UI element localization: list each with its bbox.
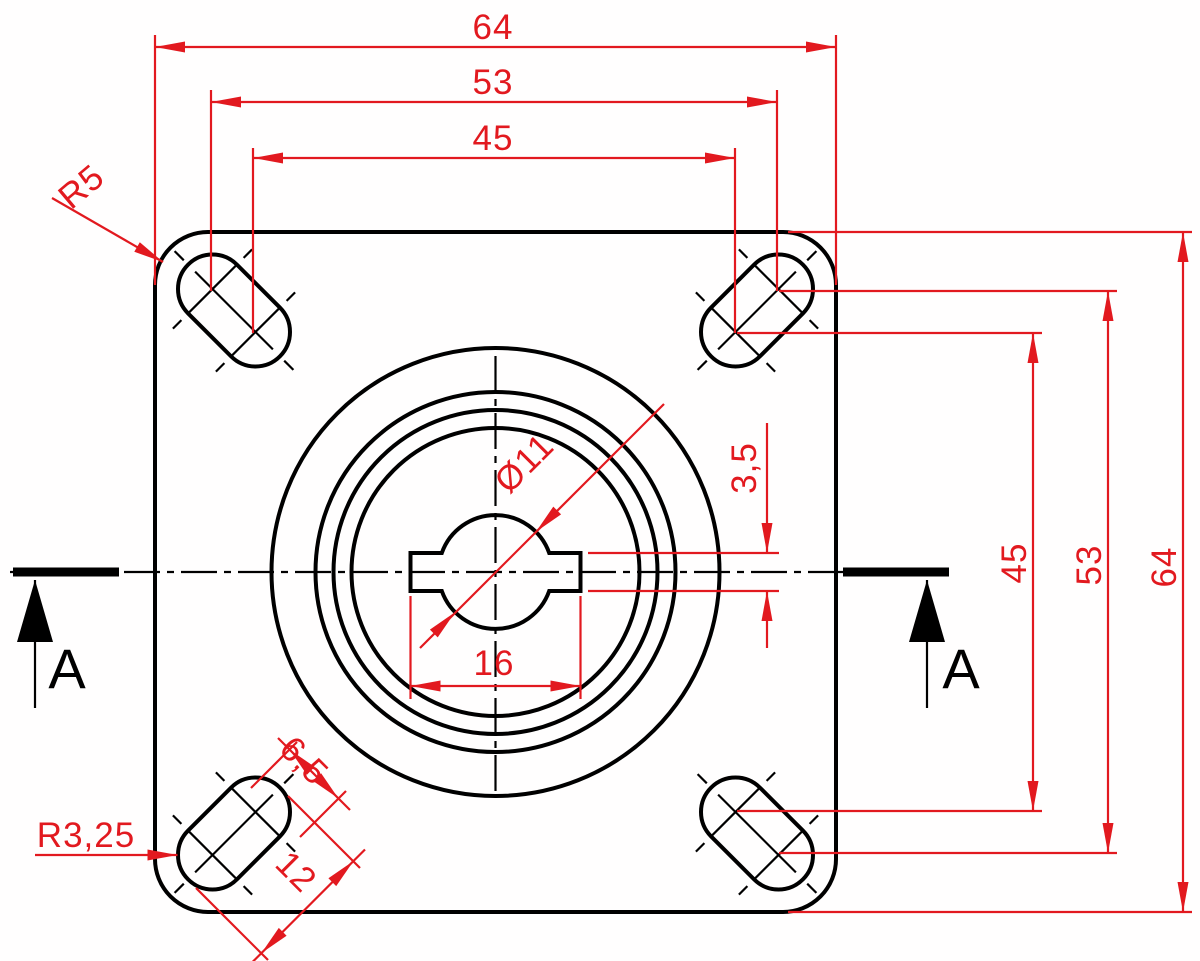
section-marker-left: A [13, 572, 119, 708]
arrowhead [762, 523, 773, 553]
extension-line [196, 888, 268, 960]
section-label-right: A [942, 637, 980, 700]
dim-label-16: 16 [474, 644, 515, 683]
dimension-slot-width-group: 6,5 [251, 729, 350, 837]
dim-label-53-right: 53 [1070, 545, 1109, 586]
technical-drawing-canvas: 64 53 45 45 53 64 [0, 0, 1200, 961]
slot-bottom-right [658, 735, 856, 933]
slot-axis-centerline [195, 795, 273, 873]
section-arrow-up [17, 580, 53, 642]
slot-top-right [658, 212, 856, 410]
dimension-slot-height-group: 3,5 [588, 423, 779, 648]
dim-label-45-right: 45 [995, 543, 1034, 584]
arrowhead [1103, 823, 1114, 853]
arrowhead [1103, 291, 1114, 321]
arrowhead [1178, 232, 1189, 262]
dim-label-45-top: 45 [473, 119, 514, 158]
leader-corner-radius-group: R5 [51, 157, 163, 262]
dimension-right-group: 45 53 64 [737, 232, 1192, 912]
drawing-svg: 64 53 45 45 53 64 [0, 0, 1200, 961]
dim-label-53-top: 53 [473, 63, 514, 102]
arrowhead [155, 42, 185, 53]
slot-top-left [135, 212, 333, 410]
arrowhead [762, 591, 773, 621]
arrowhead [806, 42, 836, 53]
arrowhead [253, 153, 283, 164]
arrowhead [747, 97, 777, 108]
dim-label-64-right: 64 [1145, 547, 1184, 588]
dim-label-r5: R5 [51, 157, 112, 217]
dim-label-35: 3,5 [725, 442, 764, 494]
arrowhead [134, 242, 163, 262]
slot-axis-centerline [718, 795, 796, 873]
section-marker-right: A [843, 572, 980, 708]
section-label-left: A [48, 637, 86, 700]
arrowhead [1178, 882, 1189, 912]
dim-label-r325: R3,25 [37, 816, 135, 855]
dimension-hole-diameter-group: Ø11 [420, 404, 664, 648]
arrowhead [1028, 781, 1039, 811]
dim-label-64-top: 64 [473, 8, 514, 47]
dimension-slot-length-group: 12 [196, 796, 365, 961]
slot-axis-centerline [718, 272, 796, 350]
section-arrow-up [909, 580, 945, 642]
dim-label-12: 12 [268, 844, 325, 901]
arrowhead [148, 850, 178, 861]
arrowhead [705, 153, 735, 164]
slot-axis-centerline [195, 272, 273, 350]
arrowhead [211, 97, 241, 108]
arrowhead [1028, 333, 1039, 363]
